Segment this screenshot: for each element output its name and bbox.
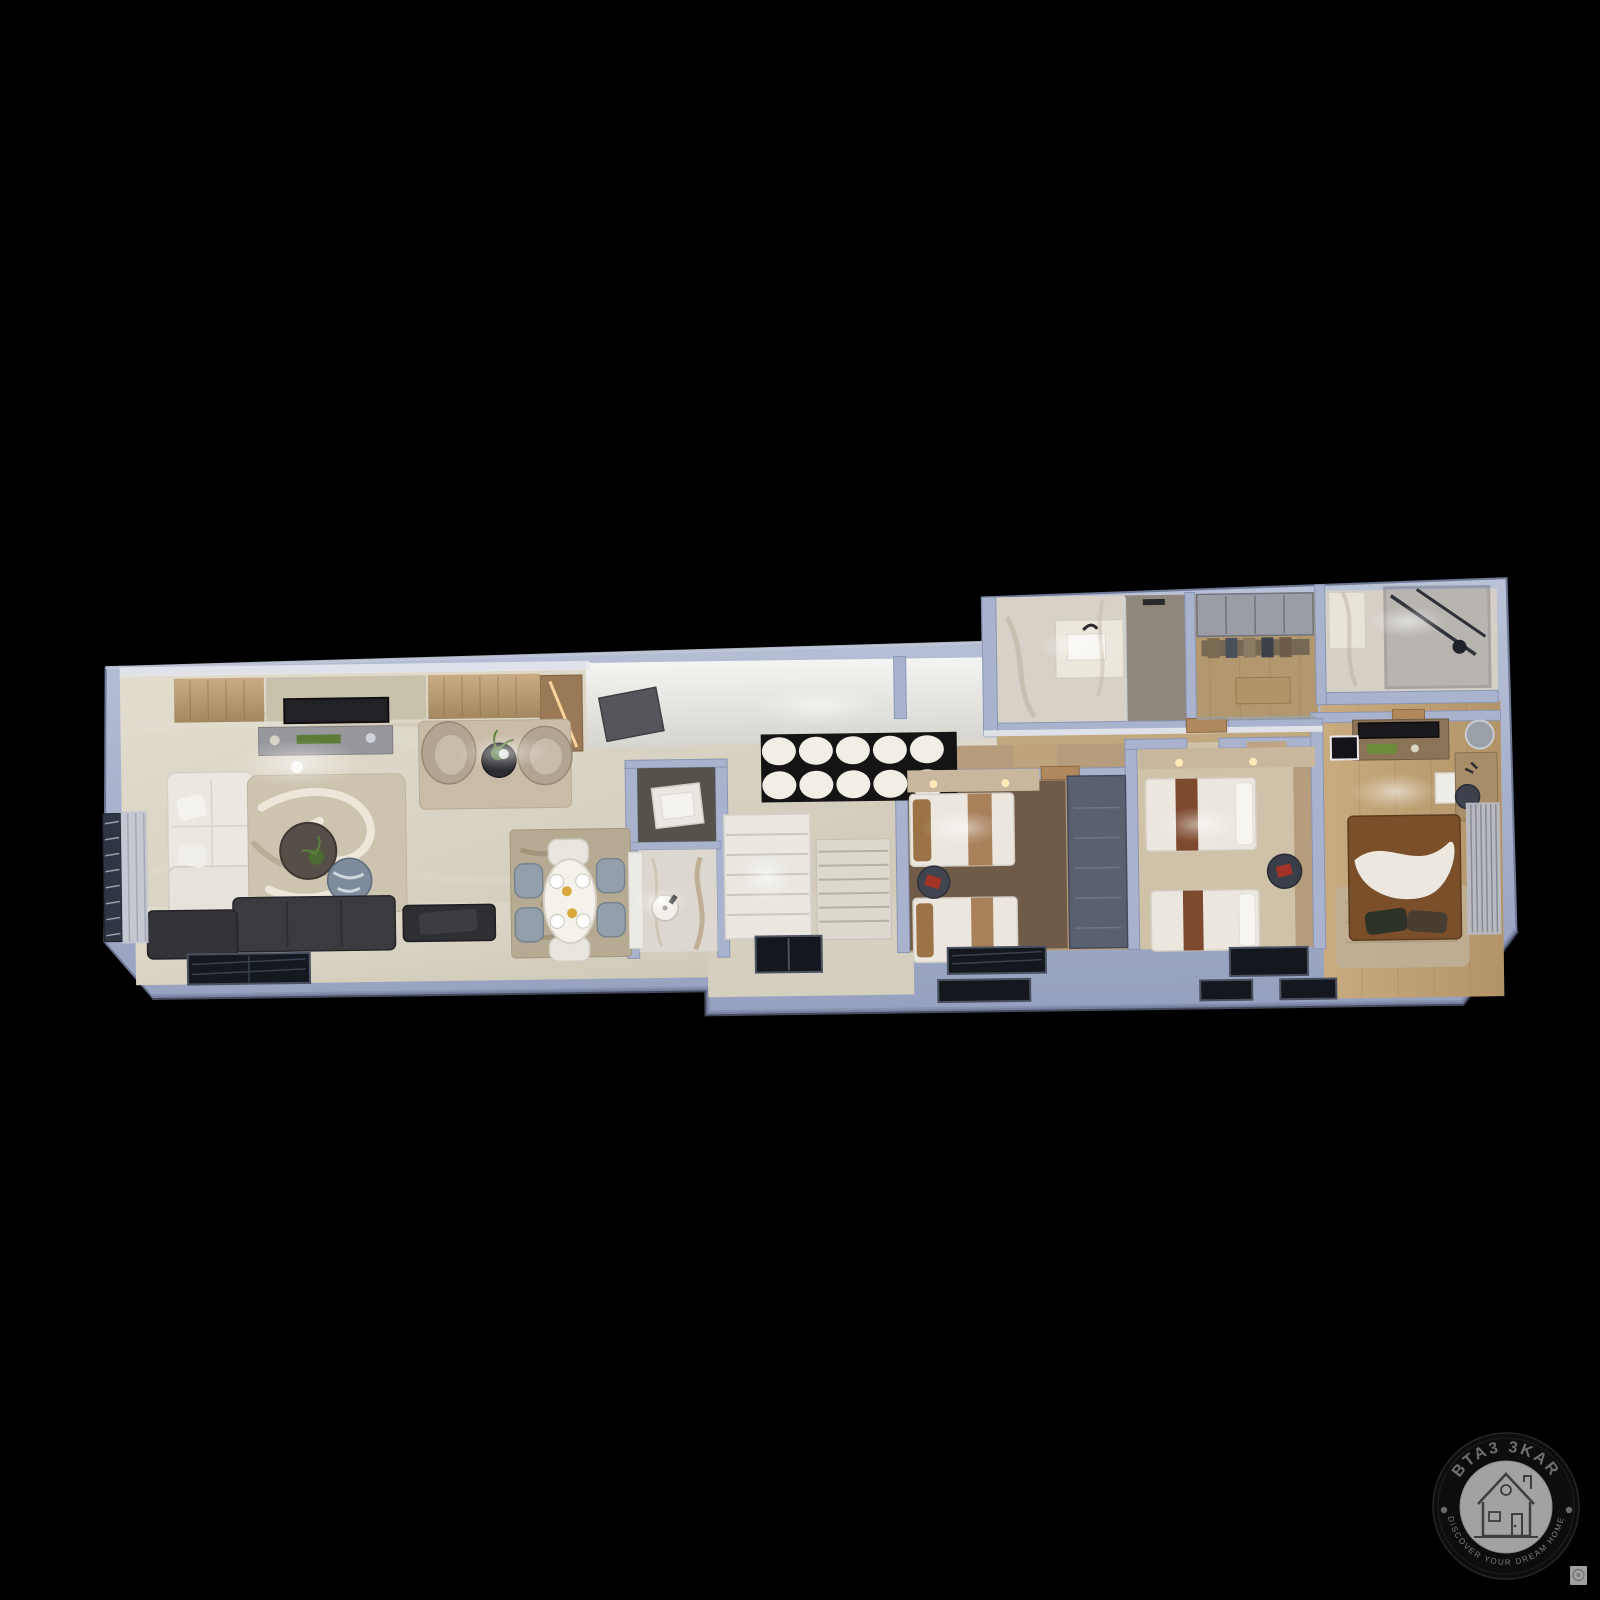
closet-clothes <box>1207 638 1219 658</box>
window-blind-left <box>103 813 123 941</box>
shower-head <box>1143 599 1165 605</box>
window <box>1200 980 1252 1001</box>
bed2-headwall <box>1139 747 1315 769</box>
bed1-headwall <box>907 769 1039 793</box>
wall <box>982 597 998 735</box>
closet-island <box>1236 677 1290 704</box>
wall <box>1125 739 1187 750</box>
render-canvas: BTA3 3KARDISCOVER YOUR DREAM HOME <box>0 0 1600 1600</box>
plan-root <box>100 578 1518 1022</box>
door-leaf <box>1186 718 1226 733</box>
bed-pillow <box>916 903 934 957</box>
badge-dot <box>1566 1507 1572 1513</box>
wall <box>894 657 907 719</box>
ceiling-wood-patch <box>1013 744 1057 767</box>
master-green-deco <box>1367 744 1397 754</box>
plate <box>550 874 564 888</box>
sofa-dark-chaise <box>147 910 238 959</box>
wall <box>1185 592 1197 724</box>
wardrobe-dark <box>1067 775 1127 948</box>
window <box>1280 979 1336 1000</box>
closet-clothes <box>1279 637 1291 657</box>
bath2-shower-floor <box>1125 595 1189 724</box>
wall <box>1315 585 1327 705</box>
vanity-mirror <box>1466 720 1494 748</box>
master-tv <box>1359 722 1439 738</box>
floorplan-svg: BTA3 3KARDISCOVER YOUR DREAM HOME <box>0 0 1600 1600</box>
bed-runner <box>1183 890 1204 950</box>
wall <box>1324 690 1498 704</box>
closet-clothes <box>1225 638 1237 658</box>
plate <box>576 874 590 888</box>
window <box>938 979 1030 1002</box>
sofa-pillow <box>177 843 208 868</box>
window <box>1230 947 1308 976</box>
sofa-dark <box>233 896 396 952</box>
plate <box>550 914 564 928</box>
dining-chair <box>514 864 542 898</box>
shower-glass <box>1125 597 1127 721</box>
wall <box>630 841 720 850</box>
dining-table <box>543 859 596 944</box>
shaft-box-inner <box>660 792 695 820</box>
overlay-root: BTA3 3KARDISCOVER YOUR DREAM HOME <box>1433 1433 1587 1585</box>
closet-clothes <box>1261 637 1273 657</box>
closet-glass-partition <box>1196 717 1316 719</box>
badge-dot <box>1441 1507 1447 1513</box>
closet-clothes <box>1243 638 1255 658</box>
wall <box>625 759 727 768</box>
wall-art-dark <box>1331 736 1358 759</box>
tv-screen <box>284 698 388 723</box>
mini-stamp-center <box>1577 1573 1581 1577</box>
wall <box>895 774 909 952</box>
dining-chair <box>597 902 625 936</box>
stairs <box>816 839 891 940</box>
bed-pillow <box>1239 894 1256 946</box>
house-icon-door-knob <box>1514 1525 1517 1528</box>
wood-panel <box>174 677 265 722</box>
plate <box>576 914 590 928</box>
bed-pillow <box>1235 783 1253 845</box>
dining-chair <box>515 908 543 942</box>
dining-chair <box>596 858 624 892</box>
master-pillow <box>1407 910 1448 934</box>
